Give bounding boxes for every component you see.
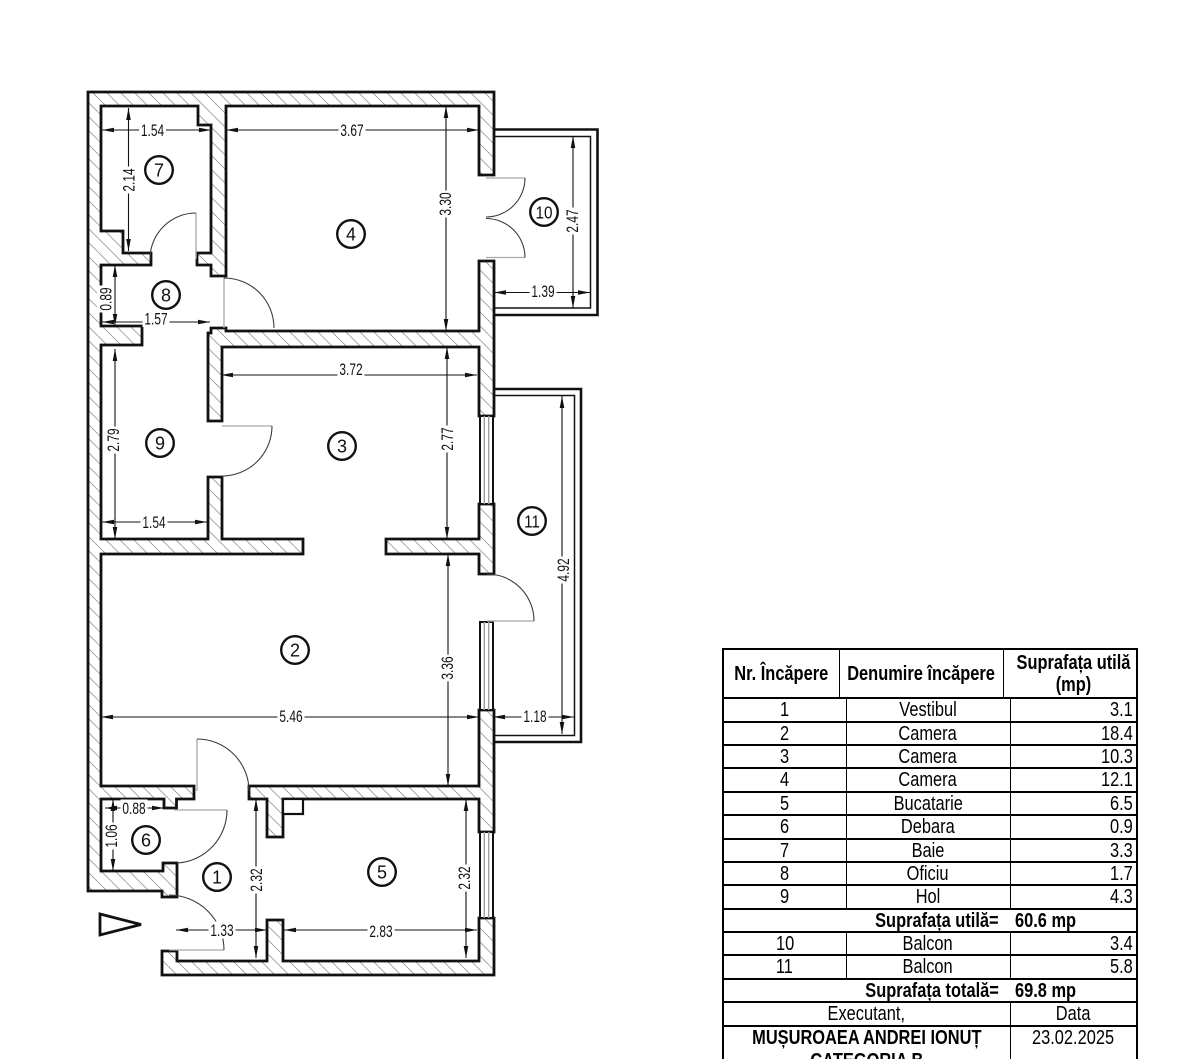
svg-text:1.54: 1.54 (142, 514, 165, 533)
svg-text:10: 10 (535, 202, 552, 222)
svg-text:1.06: 1.06 (103, 824, 122, 847)
svg-text:3.30: 3.30 (437, 192, 456, 215)
svg-text:3.67: 3.67 (340, 122, 363, 141)
svg-text:2.14: 2.14 (121, 168, 140, 191)
svg-text:5: 5 (377, 862, 387, 882)
svg-text:0.89: 0.89 (98, 287, 117, 310)
svg-text:9: 9 (155, 433, 165, 453)
svg-text:1.39: 1.39 (531, 283, 554, 302)
svg-text:2.83: 2.83 (369, 923, 392, 942)
svg-text:2.47: 2.47 (564, 209, 583, 232)
svg-text:1: 1 (212, 867, 222, 887)
svg-text:2.77: 2.77 (439, 427, 458, 450)
svg-text:1.33: 1.33 (210, 922, 233, 941)
svg-text:2.32: 2.32 (456, 866, 475, 889)
svg-text:11: 11 (524, 511, 540, 531)
svg-text:2.79: 2.79 (105, 428, 124, 451)
svg-text:3.72: 3.72 (339, 361, 362, 380)
svg-text:1.54: 1.54 (141, 122, 164, 141)
svg-text:6: 6 (141, 830, 151, 850)
svg-text:4: 4 (346, 224, 356, 244)
svg-text:3.36: 3.36 (439, 656, 458, 679)
svg-text:7: 7 (154, 160, 164, 180)
svg-text:1.57: 1.57 (144, 311, 167, 330)
svg-text:2.32: 2.32 (248, 868, 267, 891)
svg-text:5.46: 5.46 (279, 708, 302, 727)
svg-text:1.18: 1.18 (523, 708, 546, 727)
svg-text:8: 8 (161, 285, 171, 305)
svg-text:4.92: 4.92 (555, 558, 574, 581)
svg-text:2: 2 (290, 640, 300, 660)
svg-text:3: 3 (337, 436, 347, 456)
svg-text:0.88: 0.88 (122, 800, 145, 819)
